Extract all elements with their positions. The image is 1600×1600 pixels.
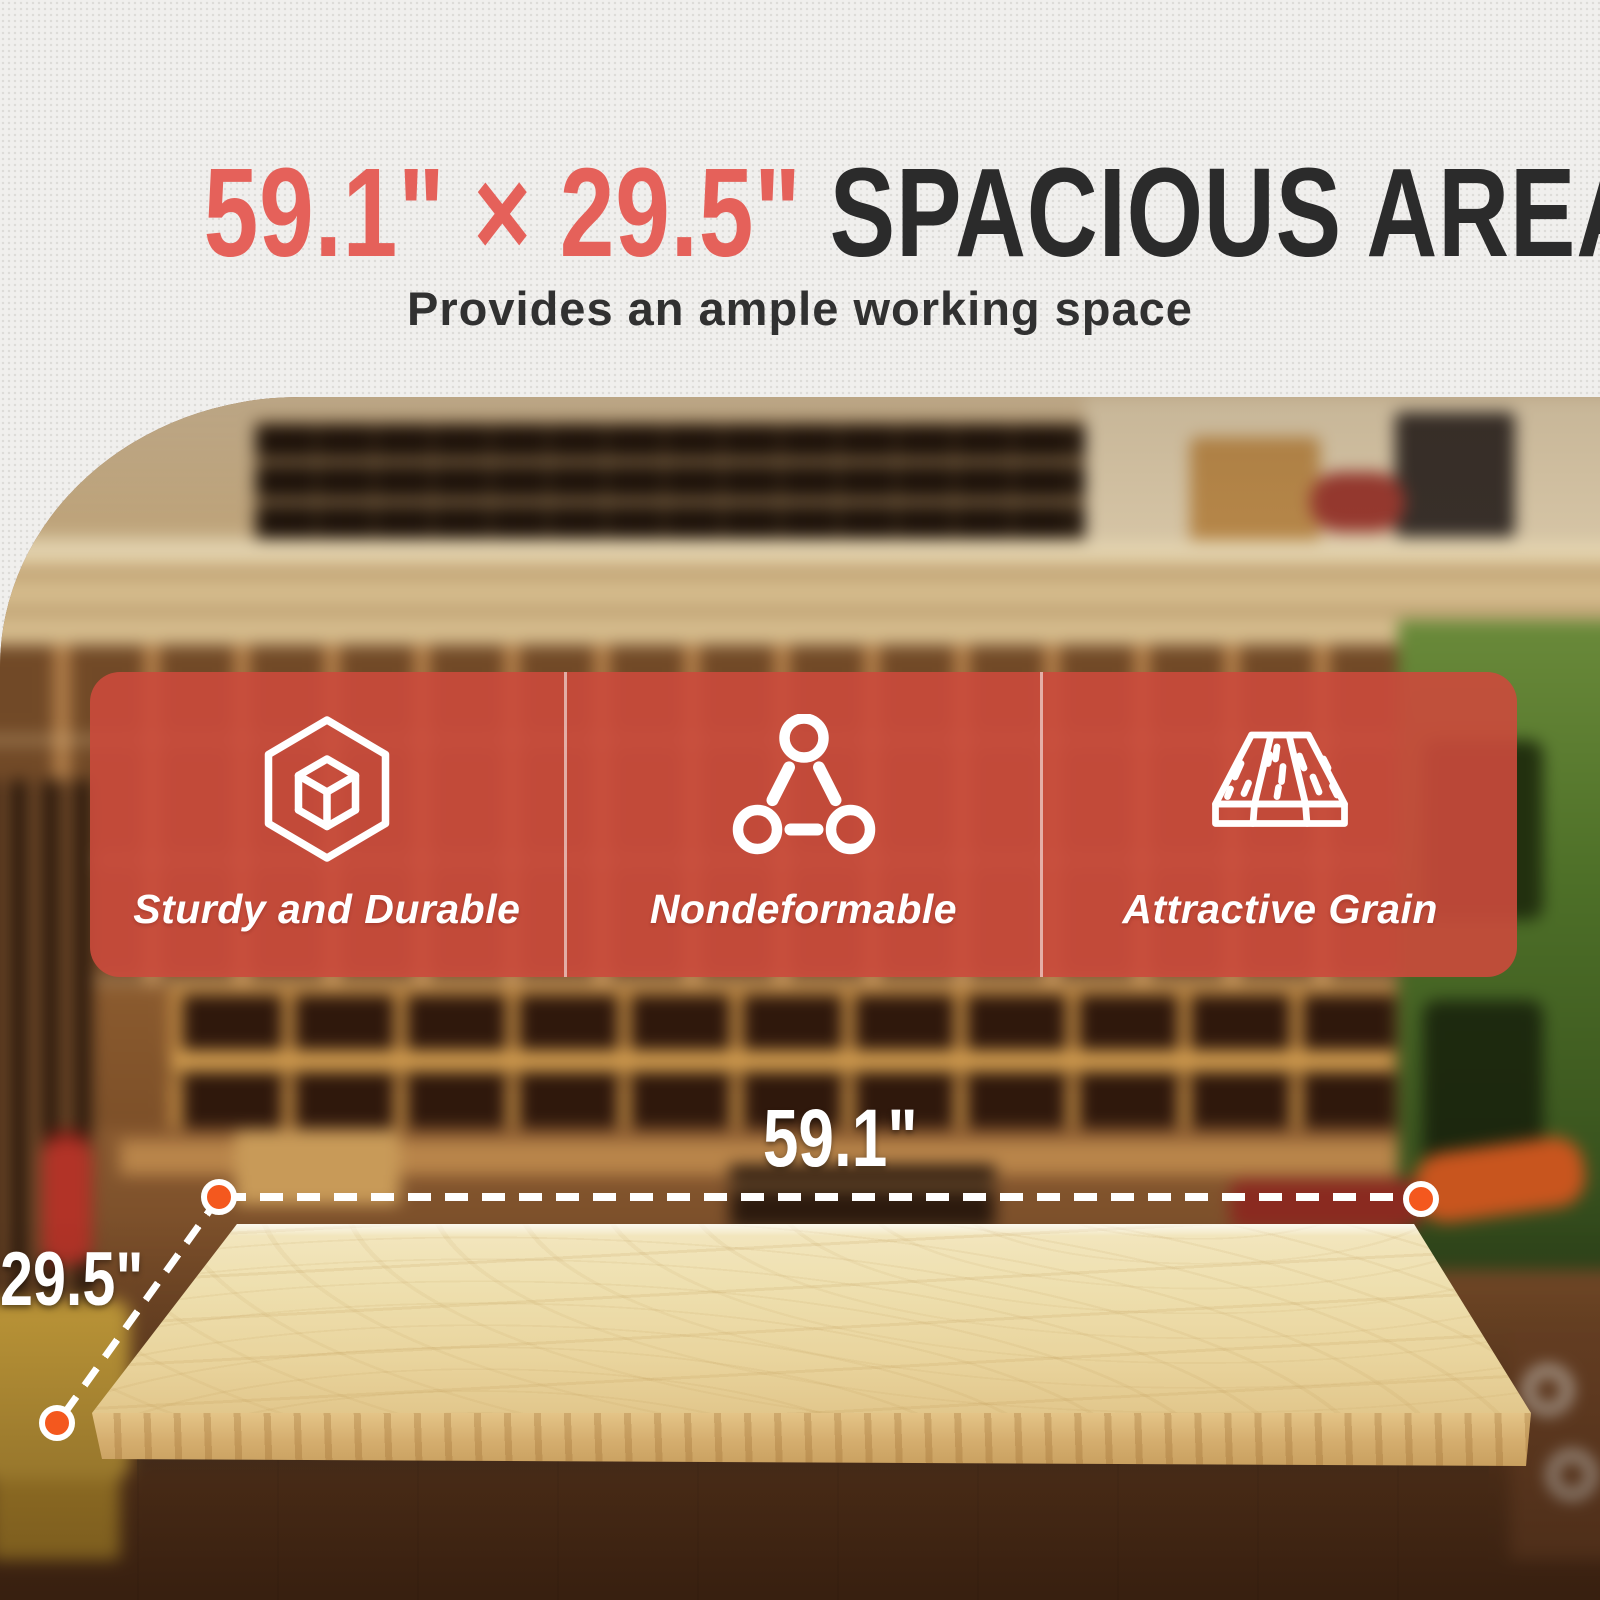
table-base-panel: [137, 1452, 1489, 1600]
dimension-endpoint-dot: [39, 1405, 75, 1441]
width-dimension-line: [223, 1193, 1417, 1201]
product-marketing-image: 59.1" × 29.5" SPACIOUS AREA Provides an …: [0, 0, 1600, 1600]
product-geometry: [0, 0, 1600, 1600]
tabletop-surface: [0, 0, 1600, 1600]
depth-dimension-label: 29.5": [0, 1236, 184, 1323]
dimension-endpoint-dot: [201, 1179, 237, 1215]
width-dimension-label: 59.1": [640, 1092, 1040, 1186]
dimension-endpoint-dot: [1403, 1181, 1439, 1217]
